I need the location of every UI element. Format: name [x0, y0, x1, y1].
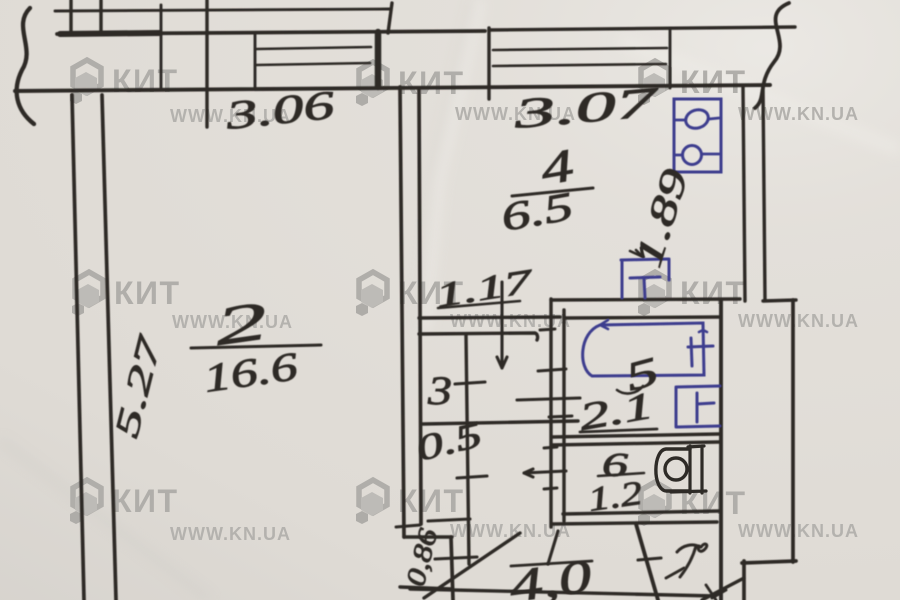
svg-text:1.2: 1.2 — [586, 475, 645, 519]
svg-text:3: 3 — [427, 368, 452, 413]
